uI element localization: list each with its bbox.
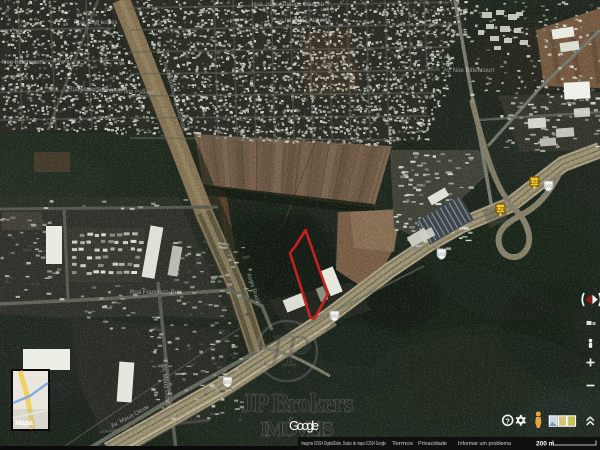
svg-text:Rua Jose Lopes: Rua Jose Lopes <box>74 20 117 26</box>
svg-text:Mapa: Mapa <box>15 420 33 427</box>
svg-text:Imagens ©2014 DigitalGlobe, Da: Imagens ©2014 DigitalGlobe, Dados do map… <box>301 440 386 447</box>
svg-text:Av. Noe Bittencourt: Av. Noe Bittencourt <box>443 68 494 74</box>
svg-text:200 m: 200 m <box>536 441 555 448</box>
svg-text:Rua Francisco Reis: Rua Francisco Reis <box>130 290 182 296</box>
svg-text:Informar um problema: Informar um problema <box>458 441 512 447</box>
svg-text:Rua Israel de Almeida: Rua Israel de Almeida <box>272 18 331 24</box>
svg-text:121: 121 <box>530 180 539 186</box>
svg-text:101: 101 <box>545 184 553 189</box>
svg-text:101: 101 <box>331 314 339 319</box>
svg-text:JP Brokers: JP Brokers <box>241 388 355 418</box>
svg-text:?: ? <box>505 416 510 425</box>
svg-text:JP: JP <box>263 325 312 376</box>
svg-text:Rua Joao Americo Wauzko: Rua Joao Americo Wauzko <box>252 2 325 8</box>
svg-text:Termos: Termos <box>392 441 413 447</box>
svg-text:121: 121 <box>496 207 505 213</box>
svg-text:Google: Google <box>289 418 319 433</box>
svg-text:101: 101 <box>224 380 232 385</box>
svg-text:Privacidade: Privacidade <box>418 441 447 447</box>
svg-text:Noe Bittencourt: Noe Bittencourt <box>2 60 44 66</box>
svg-text:101: 101 <box>438 252 446 257</box>
